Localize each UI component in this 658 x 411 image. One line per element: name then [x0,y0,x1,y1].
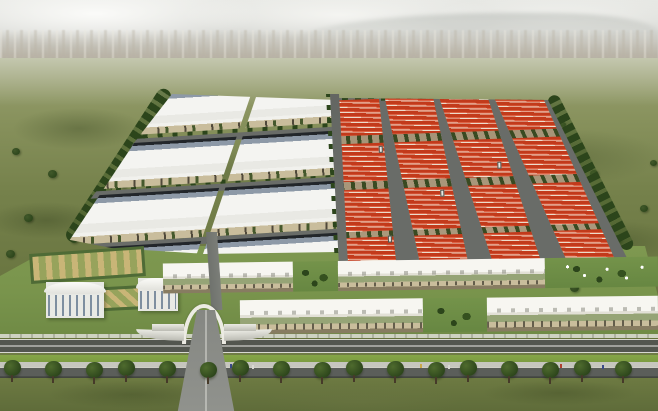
boulevard-tree [428,362,445,384]
red-roof-block [439,95,499,132]
canopy-building-row-lower [240,296,658,334]
boundary-fence [0,334,658,338]
field-tree [24,214,33,222]
boulevard-tree [615,361,632,383]
umbrella-terrace-garden [545,257,658,289]
boulevard-tree [346,360,363,382]
canopy-building [163,262,293,294]
boulevard-tree [200,362,217,384]
aerial-rendering-industrial-park [0,0,658,411]
courtyard-garden [423,298,487,333]
red-roof-block [404,186,461,229]
field-tree [6,250,15,258]
red-roof-block [532,182,598,225]
gatehouse [440,190,444,197]
pedestrian [560,364,562,368]
field-tree [48,170,57,178]
boulevard-tree [574,360,591,382]
boulevard-tree [159,361,176,383]
red-roof-block [453,139,513,178]
boulevard-tree [273,361,290,383]
red-roof-block [394,141,450,180]
boulevard-tree [232,360,249,382]
boulevard-tree [314,362,331,384]
courtyard-garden [293,261,338,292]
field-tree [650,160,657,166]
gate-wing-wall [152,324,184,331]
red-roof-block [340,189,392,233]
field-tree [12,148,20,155]
gatehouse [388,235,392,242]
boulevard-tree [118,360,135,382]
red-roof-block [468,184,529,227]
boulevard-tree [542,362,559,384]
gate-wing-wall [224,324,256,331]
boulevard-tree [45,361,62,383]
gatehouse [497,162,501,169]
pedestrian [252,365,254,369]
red-roof-block [512,137,577,176]
red-roof-block [385,97,441,134]
field-tree [640,205,648,212]
boulevard-tree [4,360,21,382]
gatehouse [379,146,383,153]
boulevard-tree [460,360,477,382]
boulevard-tree [501,361,518,383]
canopy-building [487,296,658,332]
pedestrian [448,365,450,369]
canopy-building [338,258,545,291]
pedestrian [602,365,604,369]
pedestrian [420,364,422,368]
office-building [46,282,104,318]
boulevard-tree [86,362,103,384]
red-roof-block [553,229,614,260]
green-verge [0,355,658,362]
boulevard-tree [387,361,404,383]
service-road [0,339,658,355]
